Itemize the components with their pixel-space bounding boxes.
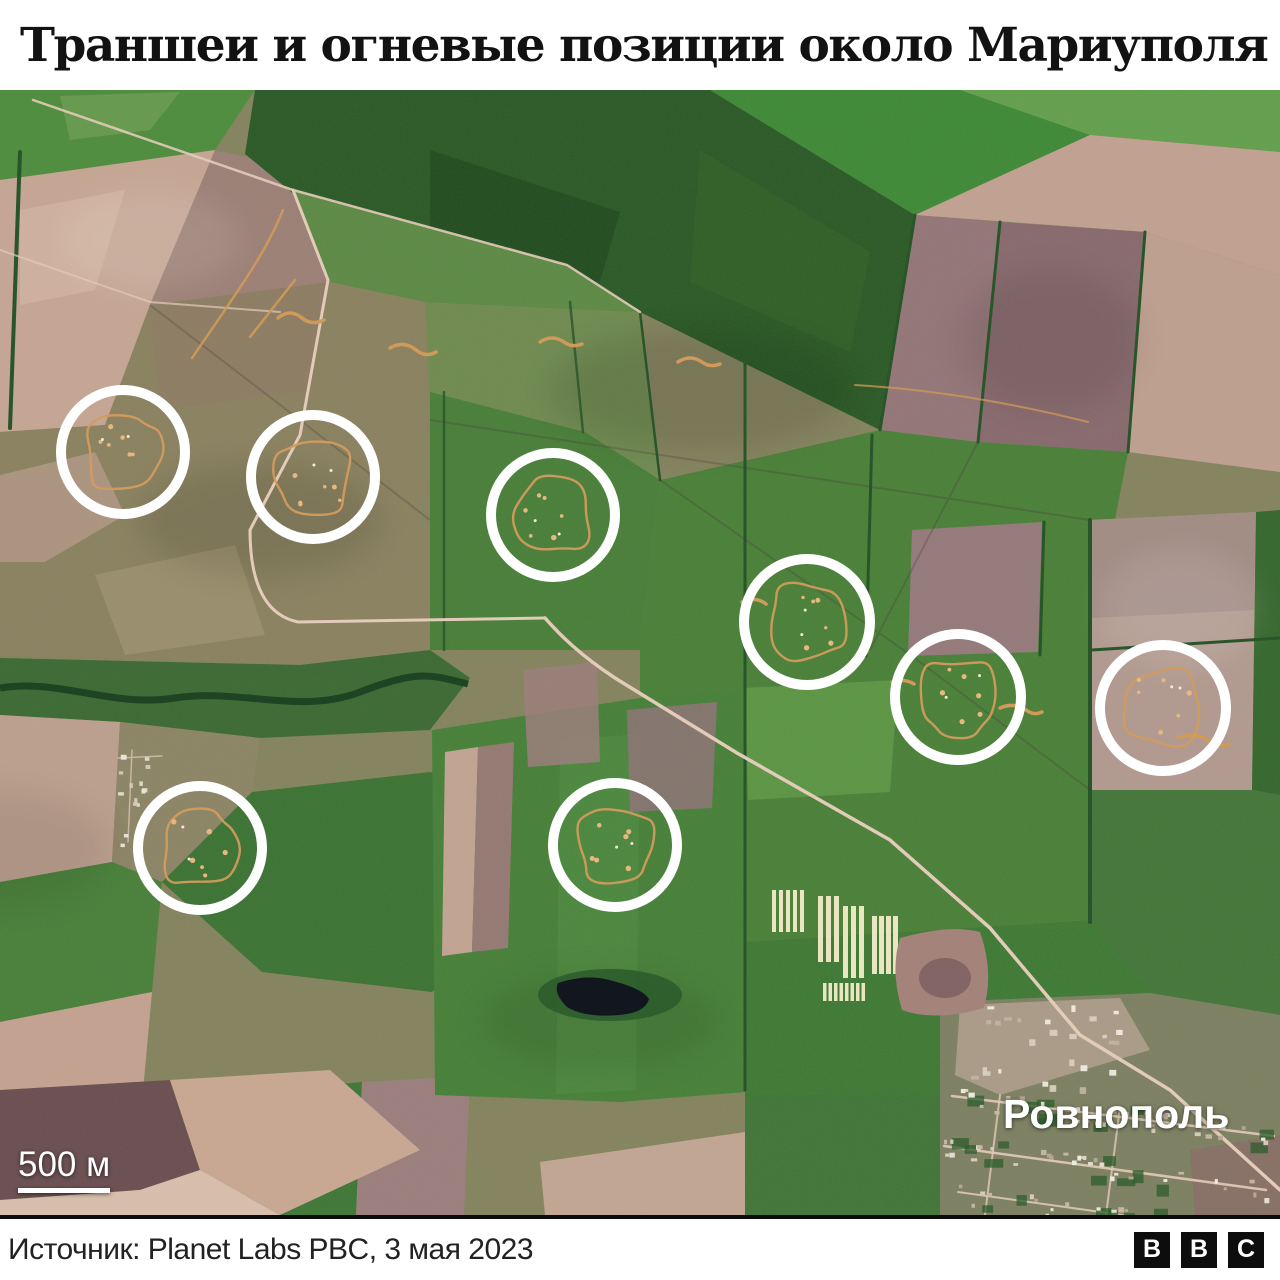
farm-barn <box>834 896 839 962</box>
page-title: Траншеи и огневые позиции около Мариупол… <box>0 18 1267 73</box>
farm-barn <box>886 916 891 974</box>
bbc-logo-letter: B <box>1181 1232 1217 1268</box>
farm-barn <box>872 916 877 974</box>
satellite-map-container: 500 м Ровнополь <box>0 90 1280 1219</box>
farm-barn <box>818 896 823 962</box>
farm-barn <box>879 916 884 974</box>
header: Траншеи и огневые позиции около Мариупол… <box>0 0 1280 90</box>
bbc-logo-letter: B <box>1134 1232 1170 1268</box>
satellite-map: 500 м Ровнополь <box>0 90 1280 1215</box>
farm-barn <box>859 906 864 978</box>
farm-barn <box>779 890 783 932</box>
farm-barn <box>862 983 866 1001</box>
scale-bar-line <box>18 1188 110 1193</box>
farm-barn <box>851 906 856 978</box>
farm-barn <box>823 983 827 1001</box>
farm-barn <box>829 983 833 1001</box>
infographic: Траншеи и огневые позиции около Мариупол… <box>0 0 1280 1280</box>
source-credit: Источник: Planet Labs PBC, 3 мая 2023 <box>8 1233 533 1267</box>
farm-barn <box>851 983 855 1001</box>
farm-barn <box>772 890 776 932</box>
scale-label: 500 м <box>18 1145 110 1184</box>
farm-barn <box>845 983 849 1001</box>
farm-barn <box>800 890 804 932</box>
footer: Источник: Planet Labs PBC, 3 мая 2023 B … <box>0 1219 1280 1280</box>
farm-barn <box>834 983 838 1001</box>
farm-barn <box>856 983 860 1001</box>
farm-barn <box>826 896 831 962</box>
bbc-logo: B B C <box>1134 1232 1264 1268</box>
farm-barn <box>786 890 790 932</box>
farm-barn <box>793 890 797 932</box>
village-label: Ровнополь <box>1003 1091 1229 1137</box>
farm-barn <box>840 983 844 1001</box>
farm-barn <box>843 906 848 978</box>
bbc-logo-letter: C <box>1228 1232 1264 1268</box>
